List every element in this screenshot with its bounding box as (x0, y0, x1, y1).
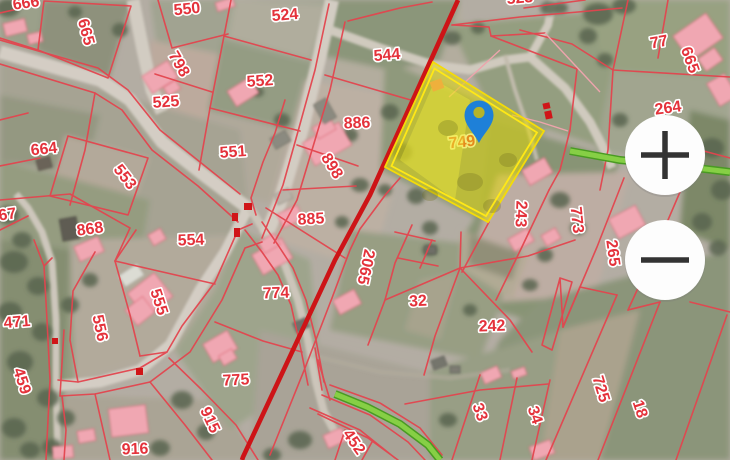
svg-text:525: 525 (152, 93, 180, 112)
svg-text:774: 774 (262, 285, 289, 303)
svg-text:916: 916 (121, 441, 148, 459)
svg-text:554: 554 (177, 232, 204, 250)
svg-text:242: 242 (478, 318, 505, 336)
svg-text:77: 77 (649, 33, 670, 53)
svg-text:885: 885 (297, 210, 325, 228)
svg-text:544: 544 (373, 46, 401, 65)
svg-text:550: 550 (173, 0, 201, 19)
svg-text:524: 524 (271, 6, 299, 25)
svg-text:243: 243 (512, 200, 530, 227)
svg-text:552: 552 (246, 72, 274, 91)
svg-text:471: 471 (3, 313, 31, 332)
svg-text:775: 775 (222, 371, 250, 389)
svg-text:32: 32 (409, 293, 428, 311)
svg-text:886: 886 (343, 115, 370, 133)
svg-text:664: 664 (30, 140, 58, 160)
svg-text:773: 773 (567, 206, 587, 234)
svg-text:551: 551 (219, 143, 247, 162)
